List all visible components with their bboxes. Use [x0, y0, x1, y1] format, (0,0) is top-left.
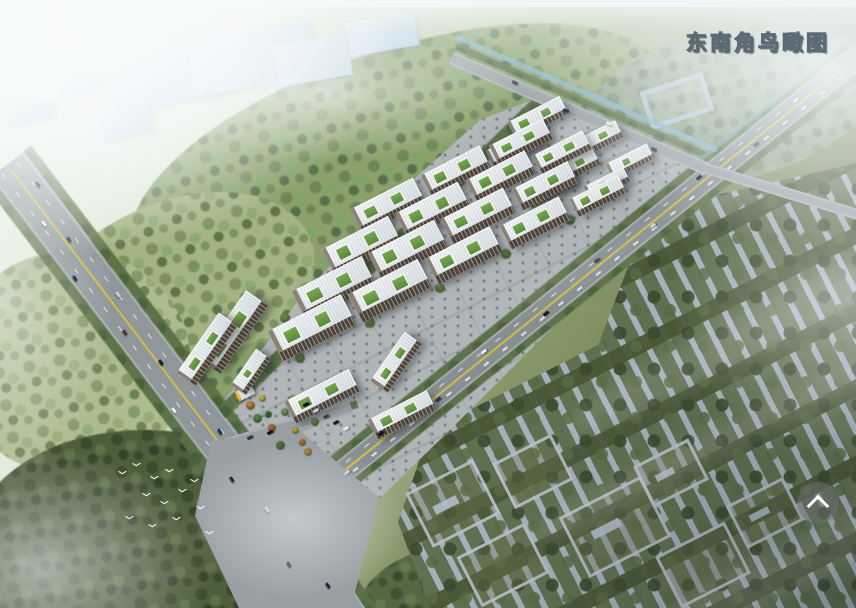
car	[651, 146, 658, 151]
roof-green-patch	[243, 369, 252, 379]
factory-building	[425, 226, 502, 285]
factory-facade	[382, 340, 422, 393]
bird	[132, 462, 141, 467]
roof-green-patch	[297, 396, 312, 409]
roadside-trees	[241, 400, 358, 442]
factory-building	[395, 181, 471, 239]
roadside-trees	[0, 176, 225, 489]
car	[323, 413, 330, 418]
bird	[178, 488, 187, 493]
factory-building	[348, 259, 432, 323]
tree-grove	[0, 228, 210, 491]
roof-green-patch	[314, 311, 332, 328]
factory-building	[512, 161, 578, 211]
garden-tree	[259, 395, 266, 402]
roof-green-patch	[364, 230, 380, 245]
factory-roof	[348, 259, 432, 323]
factory-building	[440, 188, 515, 245]
car	[344, 469, 351, 475]
forest-layer	[0, 0, 856, 608]
factory-facade	[429, 162, 491, 199]
car	[158, 359, 164, 366]
car	[333, 419, 340, 424]
factory-endwall	[508, 121, 517, 135]
garden-tree	[292, 427, 299, 434]
roof-green-patch	[597, 130, 608, 140]
bird	[142, 492, 151, 497]
haze-layer	[0, 0, 856, 608]
village-area	[0, 0, 856, 608]
roof-green-patch	[621, 157, 631, 166]
industrial-park-ground	[0, 0, 856, 608]
roof-green-patch	[390, 192, 405, 206]
haze-overlay	[0, 0, 856, 608]
factory-facade	[292, 384, 360, 423]
roof-green-patch	[541, 185, 551, 194]
car	[753, 141, 760, 147]
factory-roof	[489, 118, 553, 166]
factory-endwall	[322, 247, 336, 268]
bird	[205, 530, 214, 535]
factory-building	[370, 331, 422, 392]
walled-compound	[633, 438, 709, 507]
roadside-trees	[294, 65, 856, 530]
tree-grove	[352, 522, 588, 608]
highway-road	[217, 454, 366, 608]
factory-building	[500, 196, 571, 249]
back-to-top-button[interactable]	[797, 482, 839, 524]
factory-endwall	[532, 154, 542, 169]
factory-facade	[359, 195, 425, 234]
roof-green-patch	[518, 118, 530, 129]
roof-green-patch	[503, 163, 517, 176]
walled-compounds-layer	[0, 0, 856, 608]
car	[606, 121, 613, 126]
factory-facade	[575, 132, 624, 161]
factory-buildings-layer	[0, 0, 856, 608]
haze-overlay	[0, 0, 856, 608]
car	[378, 430, 385, 436]
factory-building	[292, 256, 376, 321]
haze-overlay	[0, 0, 856, 608]
mist-streak	[500, 159, 781, 322]
roof-green-patch	[555, 167, 566, 177]
factory-building	[569, 175, 626, 217]
birds-layer	[0, 0, 856, 608]
compound-inner-building	[655, 467, 676, 482]
road-centerline	[11, 170, 237, 466]
roof-green-patch	[363, 205, 378, 219]
car	[325, 582, 331, 589]
warehouse-roof	[60, 73, 100, 96]
roadside-trees	[454, 42, 712, 159]
factory-roof	[532, 130, 591, 174]
factory-roof	[322, 215, 402, 276]
factory-roof	[268, 294, 356, 362]
bird	[118, 470, 127, 475]
factory-endwall	[421, 174, 433, 192]
tree-grove	[0, 408, 314, 608]
roof-green-patch	[205, 330, 219, 345]
factory-roof	[368, 219, 448, 280]
factory-building	[486, 125, 545, 168]
bird	[150, 475, 159, 480]
car	[229, 476, 235, 483]
factory-roof	[500, 196, 571, 249]
car	[41, 220, 47, 227]
roof-green-patch	[500, 141, 513, 153]
roof-green-patch	[410, 234, 426, 249]
haze-overlay	[0, 0, 856, 608]
roof-green-patch	[336, 271, 353, 287]
factory-roof	[176, 312, 237, 386]
factory-endwall	[584, 186, 591, 197]
car	[543, 310, 550, 316]
bird	[160, 500, 169, 505]
roof-green-patch	[547, 173, 560, 185]
walled-compound	[559, 476, 672, 578]
roof-green-patch	[478, 176, 492, 189]
lane-dashes	[1, 172, 231, 474]
car	[115, 291, 121, 298]
roof-green-patch	[283, 326, 301, 343]
car	[512, 80, 519, 85]
factory-building	[584, 167, 630, 201]
tree-grove	[165, 313, 375, 487]
park-tree	[553, 175, 563, 185]
roof-green-patch	[363, 290, 380, 306]
factory-building	[421, 145, 492, 198]
factory-endwall	[486, 149, 495, 163]
factory-endwall	[606, 163, 614, 175]
roof-green-patch	[480, 202, 495, 216]
roof-green-patch	[579, 196, 590, 206]
factory-endwall	[370, 378, 384, 389]
factory-building	[368, 219, 448, 280]
factory-building	[489, 118, 553, 166]
roof-green-patch	[382, 249, 398, 264]
roof-green-patch	[578, 140, 589, 150]
roof-green-patch	[392, 275, 409, 291]
car	[792, 98, 799, 104]
garden-tree	[235, 395, 241, 401]
traffic-layer	[0, 0, 856, 608]
park-tree	[295, 353, 305, 363]
roof-green-patch	[433, 171, 447, 184]
haze-overlay	[0, 0, 856, 608]
lane-dashes	[289, 57, 847, 507]
roof-green-patch	[435, 195, 450, 209]
factory-building	[532, 130, 591, 174]
roof-green-patch	[324, 382, 339, 395]
factory-roof	[350, 178, 425, 235]
factory-facade	[474, 167, 536, 204]
roof-green-patch	[458, 158, 472, 171]
factory-endwall	[466, 179, 478, 197]
garden-tree	[281, 408, 289, 416]
factory-facade	[520, 176, 579, 211]
factory-endwall	[569, 142, 578, 155]
warehouse-roof	[107, 43, 234, 113]
factory-endwall	[368, 418, 379, 434]
roof-green-patch	[380, 367, 392, 379]
roof-green-patch	[453, 215, 468, 229]
park-landscaping-layer	[0, 0, 856, 608]
car	[171, 407, 177, 414]
tree-grove	[15, 151, 344, 429]
roof-green-patch	[306, 286, 323, 302]
factory-building	[176, 312, 237, 386]
roof-green-patch	[574, 157, 585, 167]
haze-overlay	[0, 0, 856, 608]
roof-green-patch	[336, 245, 352, 260]
roof-green-patch	[439, 254, 454, 268]
factory-facade	[589, 177, 630, 201]
factory-building	[368, 390, 437, 440]
car	[435, 396, 442, 402]
park-tree	[490, 208, 500, 218]
haze-overlay	[0, 0, 856, 608]
garden-tree	[246, 401, 255, 410]
factory-endwall	[350, 208, 363, 227]
factory-facade	[358, 279, 432, 323]
factory-facade	[404, 199, 470, 239]
terrain-base	[0, 0, 856, 608]
factory-facade	[508, 213, 570, 250]
mist-streak	[563, 216, 856, 444]
warehouse-roof	[186, 20, 319, 96]
factory-building	[198, 290, 268, 374]
top-edge-band	[0, 0, 856, 7]
chevron-up-icon	[807, 495, 830, 518]
factory-facade	[332, 235, 402, 277]
garden-tree	[299, 439, 306, 446]
roof-green-patch	[543, 151, 555, 162]
factory-endwall	[524, 191, 532, 204]
factory-building	[524, 170, 577, 209]
car	[313, 407, 320, 412]
roof-green-patch	[188, 356, 202, 371]
view-caption-label: 东南角鸟瞰图	[686, 27, 830, 57]
bird	[165, 468, 174, 473]
highway-road	[0, 152, 257, 483]
factory-facade	[378, 239, 448, 281]
factory-endwall	[268, 329, 283, 352]
car	[217, 428, 223, 435]
factory-facade	[449, 205, 515, 244]
factory-facade	[279, 315, 357, 361]
north-road	[448, 52, 708, 175]
roof-green-patch	[523, 130, 536, 142]
roof-green-patch	[517, 136, 529, 146]
park-tree	[280, 313, 290, 323]
lane-dashes	[296, 66, 854, 516]
factory-roof	[546, 147, 601, 188]
compound-inner-building	[748, 506, 770, 521]
bird	[148, 523, 157, 528]
roadside-trees	[259, 448, 375, 608]
compound-inner-building	[433, 495, 459, 514]
factory-roof	[284, 369, 360, 424]
factory-endwall	[425, 256, 438, 276]
factory-roof	[512, 161, 578, 211]
car	[122, 329, 128, 336]
road-junction	[195, 430, 395, 608]
factory-endwall	[440, 218, 453, 237]
road-centerline	[239, 470, 344, 608]
compound-inner-building	[590, 517, 622, 540]
garden-tree	[276, 441, 285, 450]
factory-building	[606, 143, 655, 179]
roof-green-patch	[540, 107, 552, 118]
warehouse-roof	[6, 98, 55, 125]
factory-roof	[421, 145, 492, 198]
bird	[125, 515, 134, 520]
garden-tree	[311, 418, 319, 426]
roof-green-patch	[599, 185, 610, 195]
car	[343, 425, 350, 430]
factory-facade	[492, 138, 545, 169]
lane-dashes	[16, 161, 246, 463]
factory-facade	[552, 159, 601, 188]
car	[481, 349, 488, 355]
road-centerline	[298, 66, 845, 508]
factory-endwall	[512, 188, 523, 205]
factory-roof	[198, 290, 268, 374]
car	[264, 507, 270, 514]
mist-streak	[523, 351, 856, 554]
factory-facade	[496, 132, 553, 165]
walled-compound	[405, 459, 500, 548]
warehouse-roof	[271, 33, 352, 87]
factory-roof	[368, 390, 437, 440]
park-tree	[350, 277, 360, 287]
car	[650, 223, 657, 229]
car	[303, 401, 310, 406]
haze-overlay	[0, 0, 856, 608]
roads-layer	[0, 0, 856, 608]
roof-green-patch	[231, 311, 247, 328]
garden-tree	[265, 411, 272, 418]
factory-facade	[514, 108, 568, 140]
roof-green-patch	[496, 147, 508, 157]
park-tree	[422, 242, 432, 252]
lane-dashes	[229, 476, 336, 608]
haze-overlay	[0, 0, 856, 608]
car	[247, 434, 254, 439]
factory-roof	[606, 143, 655, 179]
factory-endwall	[395, 211, 408, 231]
car	[695, 174, 702, 180]
park-tree	[365, 318, 375, 328]
roadside-trees	[275, 42, 849, 507]
walled-compound	[726, 477, 805, 549]
factory-roof	[569, 120, 624, 161]
car	[66, 236, 72, 243]
entrance-gate	[234, 383, 255, 401]
car	[594, 257, 601, 263]
factory-building	[508, 96, 569, 140]
factory-endwall	[368, 251, 382, 272]
park-tree	[435, 283, 445, 293]
courtyard-building	[639, 72, 714, 130]
roof-green-patch	[394, 347, 406, 359]
factory-endwall	[348, 292, 362, 314]
entrance-road	[222, 401, 352, 451]
factory-endwall	[489, 144, 500, 160]
roadside-trees	[209, 482, 325, 608]
warehouse-roof	[97, 103, 154, 141]
park-tree	[565, 215, 575, 225]
aerial-rendering: 东南角鸟瞰图	[0, 0, 856, 608]
factory-building	[350, 178, 425, 235]
roof-green-patch	[537, 209, 551, 222]
factory-facade	[213, 301, 268, 374]
factory-facade	[611, 154, 654, 179]
factory-facade	[190, 321, 238, 386]
factory-endwall	[176, 369, 192, 382]
car	[72, 275, 78, 282]
bird	[190, 478, 199, 483]
roadside-trees	[23, 146, 265, 459]
factory-roof	[508, 96, 569, 140]
tree-grove	[98, 0, 703, 369]
roof-green-patch	[379, 415, 392, 427]
factory-roof	[395, 181, 471, 239]
warehouse-roof	[345, 11, 420, 57]
hazy-fields-top-left	[0, 0, 856, 608]
garden-tree	[289, 395, 296, 402]
factory-roof	[486, 125, 545, 168]
roof-green-patch	[523, 185, 536, 197]
factory-endwall	[546, 169, 555, 182]
bird	[196, 505, 205, 510]
park-tree	[501, 249, 511, 259]
garden-tree	[304, 448, 312, 456]
factory-endwall	[198, 355, 216, 370]
roof-green-patch	[466, 240, 481, 254]
factory-building	[546, 147, 601, 188]
garden-tree	[268, 424, 276, 432]
factory-roof	[370, 331, 422, 392]
factory-roof	[425, 226, 502, 285]
factory-building	[569, 120, 624, 161]
factory-facade	[302, 276, 376, 320]
east-spur-road	[702, 162, 856, 220]
factory-building	[231, 349, 271, 395]
factory-roof	[466, 150, 537, 203]
factory-roof	[524, 170, 577, 209]
factory-facade	[375, 404, 437, 440]
roadside-trees	[193, 94, 546, 441]
roof-green-patch	[563, 141, 575, 152]
factory-building	[466, 150, 537, 203]
warehouse-estate-layer	[0, 0, 856, 608]
factory-endwall	[569, 198, 578, 212]
factory-roof	[584, 167, 630, 201]
factory-roof	[569, 175, 626, 217]
factory-endwall	[231, 383, 243, 392]
factory-roof	[292, 256, 376, 321]
garden-tree	[245, 387, 251, 393]
car	[35, 181, 41, 188]
factory-endwall	[500, 225, 512, 243]
bird	[172, 516, 181, 521]
roof-green-patch	[408, 209, 423, 223]
factory-building	[284, 369, 360, 424]
walled-compound	[456, 523, 549, 607]
factory-roof	[440, 188, 515, 245]
